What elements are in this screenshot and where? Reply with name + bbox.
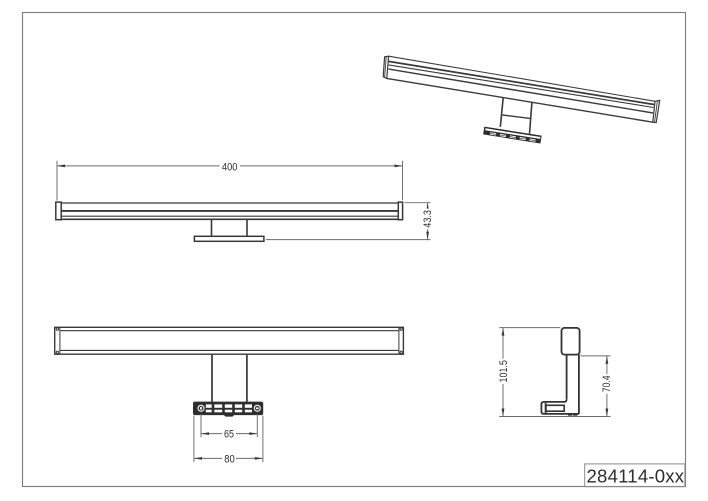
svg-text:284114-0xx: 284114-0xx — [587, 466, 685, 487]
svg-text:101.5: 101.5 — [498, 360, 510, 382]
svg-text:65: 65 — [224, 428, 234, 440]
svg-text:70.4: 70.4 — [601, 375, 613, 392]
svg-text:400: 400 — [222, 161, 238, 173]
svg-text:80: 80 — [224, 453, 235, 465]
svg-text:43.3: 43.3 — [422, 210, 434, 228]
